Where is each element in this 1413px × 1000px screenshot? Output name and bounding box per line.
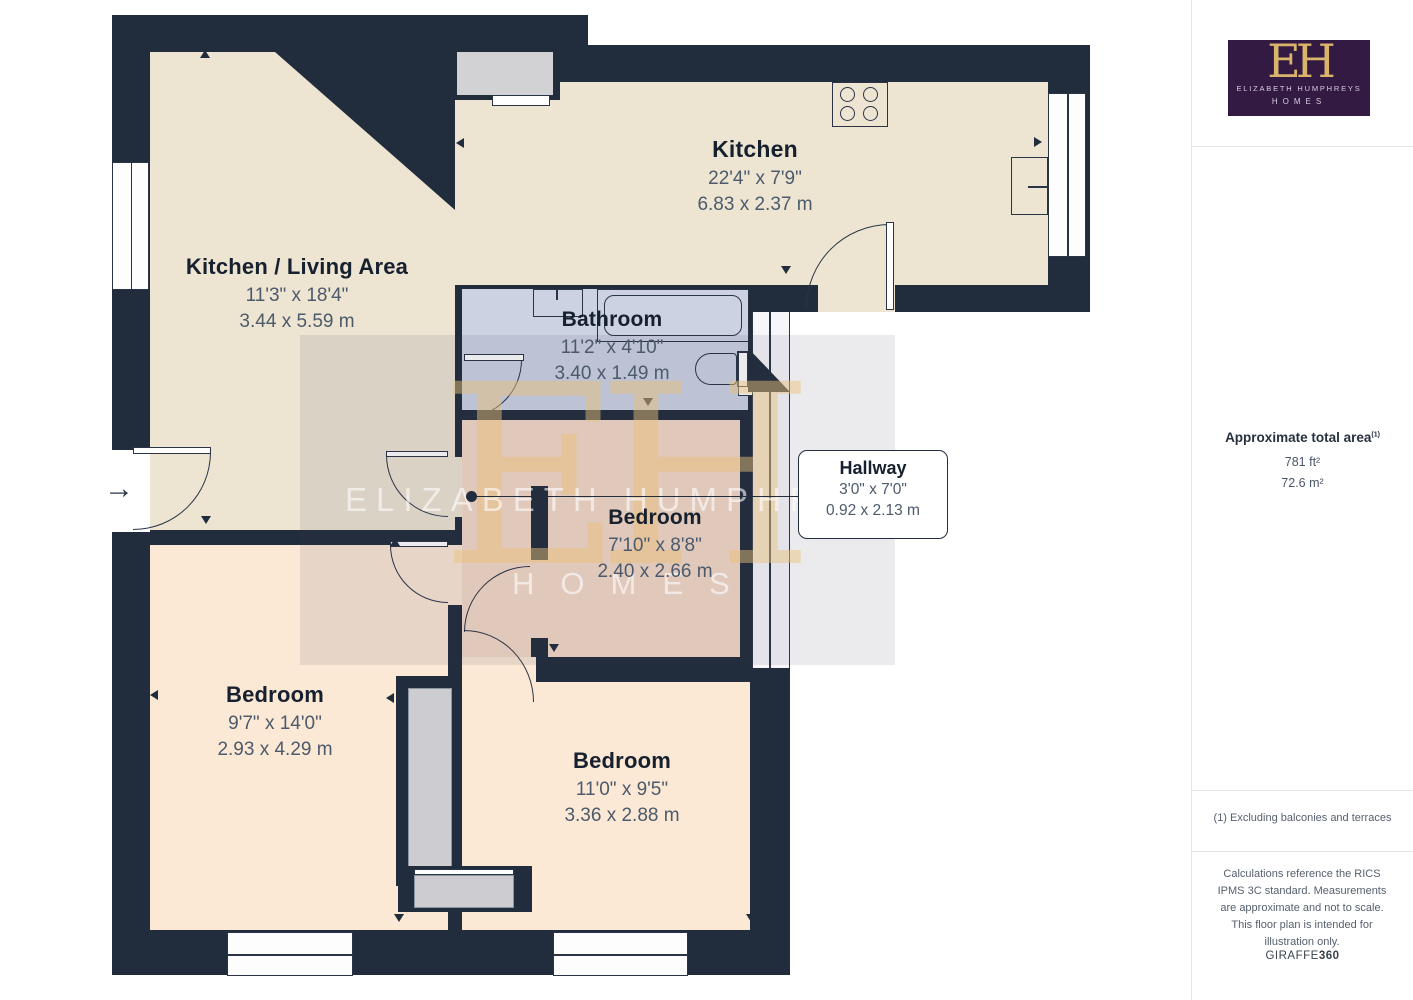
direction-arrow (746, 914, 756, 922)
direction-arrow (150, 690, 158, 700)
total-area-title: Approximate total area(1) (1192, 430, 1413, 445)
room-dims-m: 3.44 x 5.59 m (186, 309, 408, 335)
room-label-bedroom-left: Bedroom 9'7" x 14'0" 2.93 x 4.29 m (217, 682, 332, 763)
room-dims-ft: 11'0" x 9'5" (564, 777, 679, 803)
closet-bottom (414, 875, 514, 908)
sidebar-divider-2 (1192, 790, 1413, 791)
direction-arrow (390, 538, 400, 546)
window-bottom-right-mullion (553, 954, 688, 956)
room-dims-ft: 11'2" x 4'10" (554, 335, 669, 361)
room-label-bedroom-right: Bedroom 11'0" x 9'5" 3.36 x 2.88 m (564, 748, 679, 829)
sidebar-divider-1 (1192, 146, 1413, 147)
room-dims-ft: 3'0" x 7'0" (799, 479, 947, 500)
room-name: Bedroom (564, 748, 679, 774)
hallway-floor-line (769, 312, 771, 668)
counter-top (457, 52, 553, 95)
floor-plan-page: → (0, 0, 1413, 1000)
sidebar-divider-3 (1192, 851, 1413, 852)
total-area-title-text: Approximate total area (1225, 430, 1371, 445)
room-name: Kitchen / Living Area (186, 254, 408, 280)
stove-burner (863, 87, 878, 102)
logo-homes: HOMES (1228, 97, 1370, 106)
room-dims-m: 6.83 x 2.37 m (697, 192, 812, 218)
wall-bedroom-middle-internal-lower (531, 638, 548, 657)
total-area-footnote-ref: (1) (1371, 432, 1380, 439)
room-name: Bedroom (597, 506, 712, 530)
window-left (112, 162, 149, 290)
floor-kitchen-strip (455, 100, 567, 285)
direction-arrow (386, 693, 394, 703)
brand-suffix: 360 (1319, 950, 1340, 962)
window-bottom-left (227, 932, 353, 976)
window-kitchen-mullion (1067, 93, 1069, 257)
window-bottom-left-mullion (227, 954, 353, 956)
entry-arrow-icon: → (104, 472, 134, 506)
room-name: Hallway (799, 458, 947, 479)
door-opening-living-vestibule (448, 457, 462, 517)
stove-burner (840, 106, 855, 121)
toilet-tank (737, 351, 748, 387)
window-kitchen-right (1048, 93, 1086, 257)
room-label-bathroom: Bathroom 11'2" x 4'10" 3.40 x 1.49 m (554, 308, 669, 387)
room-label-kitchen: Kitchen 22'4" x 7'9" 6.83 x 2.37 m (697, 136, 812, 218)
room-dims-ft: 11'3" x 18'4" (186, 283, 408, 309)
door-opening-vestibule-bedroom-left (448, 545, 462, 605)
room-name: Bedroom (217, 682, 332, 708)
logo-name: ELIZABETH HUMPHREYS (1228, 84, 1370, 93)
room-dims-m: 3.40 x 1.49 m (554, 361, 669, 387)
disclaimer: Calculations reference the RICS IPMS 3C … (1216, 866, 1388, 951)
room-label-bedroom-middle: Bedroom 7'10" x 8'8" 2.40 x 2.66 m (597, 506, 712, 585)
logo-initials: EH (1228, 40, 1370, 88)
room-dims-ft: 7'10" x 8'8" (597, 533, 712, 559)
closet-tall (408, 688, 452, 870)
total-area-imperial: 781 ft² (1192, 455, 1413, 469)
direction-arrow (200, 50, 210, 58)
agency-logo: EH ELIZABETH HUMPHREYS HOMES (1228, 40, 1370, 116)
direction-arrow (781, 266, 791, 274)
room-dims-ft: 22'4" x 7'9" (697, 166, 812, 192)
sidebar-divider-vertical (1191, 0, 1192, 1000)
room-name: Bathroom (554, 308, 669, 332)
room-name: Kitchen (697, 136, 812, 163)
direction-arrow (643, 398, 653, 406)
room-dims-m: 2.40 x 2.66 m (597, 559, 712, 585)
direction-arrow (394, 914, 404, 922)
room-dims-m: 2.93 x 4.29 m (217, 737, 332, 763)
kitchen-appliance-line (1028, 186, 1048, 188)
brand-giraffe360: GIRAFFE360 (1192, 950, 1413, 962)
direction-arrow (452, 681, 460, 691)
hallway-leader-line (472, 496, 798, 497)
wall-bedroom-middle-internal-upper (531, 486, 548, 560)
total-area-metric: 72.6 m² (1192, 476, 1413, 490)
toilet-bowl (695, 353, 737, 385)
window-bottom-right (553, 932, 688, 976)
room-dims-m: 3.36 x 2.88 m (564, 803, 679, 829)
room-label-kitchen-living: Kitchen / Living Area 11'3" x 18'4" 3.44… (186, 254, 408, 335)
stove-burner (840, 87, 855, 102)
stove (832, 82, 888, 127)
direction-arrow (201, 516, 211, 524)
direction-arrow (549, 644, 559, 652)
direction-arrow (456, 138, 464, 148)
window-left-mullion (131, 162, 133, 290)
footnote-balconies: (1) Excluding balconies and terraces (1192, 812, 1413, 824)
brand-name: GIRAFFE (1265, 950, 1318, 962)
kitchen-door-leaf (886, 222, 894, 310)
counter-opening (492, 95, 550, 106)
hallway-leader-dot (466, 491, 477, 502)
room-dims-ft: 9'7" x 14'0" (217, 711, 332, 737)
room-label-hallway: Hallway 3'0" x 7'0" 0.92 x 2.13 m (798, 450, 948, 539)
stove-burner (863, 106, 878, 121)
room-dims-m: 0.92 x 2.13 m (799, 500, 947, 521)
bathroom-sink-tap (556, 289, 558, 300)
direction-arrow (1034, 137, 1042, 147)
